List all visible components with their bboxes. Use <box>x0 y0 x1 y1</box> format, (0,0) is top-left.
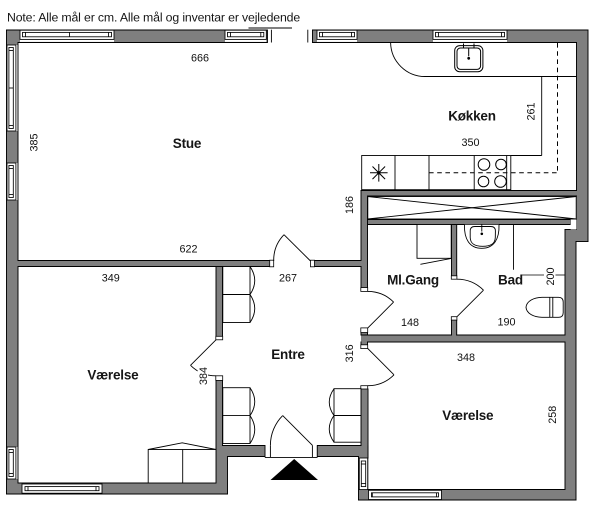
svg-text:349: 349 <box>102 273 120 285</box>
svg-text:Stue: Stue <box>173 136 202 151</box>
svg-text:Værelse: Værelse <box>87 368 139 383</box>
svg-text:350: 350 <box>461 137 479 149</box>
svg-text:186: 186 <box>344 196 356 214</box>
svg-text:Bad: Bad <box>498 273 523 288</box>
svg-text:Værelse: Værelse <box>442 408 494 423</box>
svg-text:148: 148 <box>401 317 419 329</box>
svg-text:384: 384 <box>198 367 210 385</box>
svg-text:267: 267 <box>279 273 297 285</box>
svg-text:190: 190 <box>497 317 515 329</box>
svg-text:622: 622 <box>179 244 197 256</box>
svg-text:316: 316 <box>344 344 356 362</box>
svg-text:258: 258 <box>547 406 559 424</box>
svg-text:Ml.Gang: Ml.Gang <box>387 273 439 288</box>
svg-text:348: 348 <box>457 352 475 364</box>
svg-text:666: 666 <box>191 53 209 65</box>
svg-text:200: 200 <box>545 267 557 285</box>
svg-text:385: 385 <box>28 133 40 151</box>
svg-text:Entre: Entre <box>271 347 305 362</box>
svg-text:Køkken: Køkken <box>448 109 496 124</box>
svg-text:Note: Alle mål er cm. Alle mål: Note: Alle mål er cm. Alle mål og invent… <box>7 10 300 24</box>
svg-text:261: 261 <box>526 102 538 120</box>
